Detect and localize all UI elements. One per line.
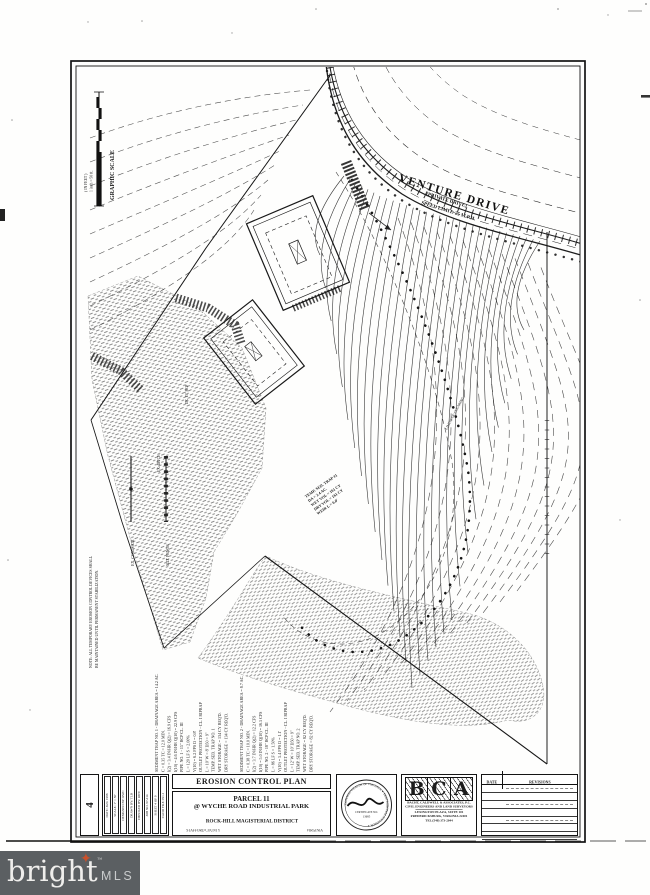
graphic-scale: GRAPHIC SCALE ( IN FEET ) 1 inch = 50 ft… <box>84 92 116 206</box>
scanned-plan-sheet: EX. CONTOUR SILT FENCE GRAPHIC SCALE ( I… <box>0 0 650 895</box>
svg-text:SEDIMENT TRAP NO. 1 - DRAINA: SEDIMENT TRAP NO. 1 - DRAINAGE AREA = 14… <box>154 674 159 772</box>
firm-logo-box: B C A BACHT, CALDWELL & ASSOCIATES, P.C.… <box>401 774 477 836</box>
revision-row <box>482 793 577 801</box>
plan-title-box: EROSION CONTROL PLAN <box>172 774 331 789</box>
parcel-label: PARCEL 11 <box>173 795 330 803</box>
svg-text:L = 12' W = 10' D50 = 9": L = 12' W = 10' D50 = 9" <box>289 730 294 772</box>
svg-text:PIPE NO. 1 - 15" RCP CL. III: PIPE NO. 1 - 15" RCP CL. III <box>179 722 184 772</box>
revision-row <box>482 809 577 817</box>
district-label: ROCK-HILL MAGISTERIAL DISTRICT <box>205 818 297 824</box>
seal-ring-text: COMMONWEALTH OF VIRGINIA ✦ PROFESSIONAL … <box>343 782 389 828</box>
engineer-seal-box: COMMONWEALTH OF VIRGINIA ✦ PROFESSIONAL … <box>336 774 397 836</box>
svg-text:DRY STORAGE = 82 CY REQ'D.: DRY STORAGE = 82 CY REQ'D. <box>308 715 313 772</box>
info-strip: JOB NO. 97-214 <box>144 776 151 834</box>
venture-drive-road <box>326 0 646 263</box>
info-strip: DESIGNED BY: RWC <box>120 776 127 834</box>
info-strip: SCALE: 1" = 50' <box>112 776 119 834</box>
park-label: @ WYCHE ROAD INDUSTRIAL PARK <box>173 803 330 810</box>
revisions-title-header: REVISIONS <box>529 780 550 784</box>
svg-text:V(10) = 5.4 FPS D = 1.1': V(10) = 5.4 FPS D = 1.1' <box>277 730 282 772</box>
svg-text:EX. 15" RCP: EX. 15" RCP <box>185 385 189 404</box>
svg-text:EX. DITCH: EX. DITCH <box>157 454 161 472</box>
svg-text:DRY STORAGE = 134 CY REQ'D.: DRY STORAGE = 134 CY REQ'D. <box>223 713 228 772</box>
graphic-scale-ratio: 1 inch = 50 ft. <box>90 171 94 192</box>
svg-text:PIPE NO. 2 - 18" RCP CL. III: PIPE NO. 2 - 18" RCP CL. III <box>264 722 269 772</box>
svg-text:L = 86 LF S = 1.50%: L = 86 LF S = 1.50% <box>271 737 276 772</box>
field-note-line2: BE MAINTAINED UNTIL PERMANENT STABILIZAT… <box>95 570 99 668</box>
svg-text:L = 10' W = 8' D50 = 9": L = 10' W = 8' D50 = 9" <box>204 732 209 772</box>
svg-text:TEMP. SED. TRAP NO. 1: TEMP. SED. TRAP NO. 1 <box>211 728 216 772</box>
legend-label-1: EX. CONTOUR <box>130 539 135 566</box>
registration-tick <box>315 26 322 46</box>
revision-row <box>482 817 577 825</box>
svg-text:OUTLET PROTECTION - CL. I RIPR: OUTLET PROTECTION - CL. I RIPRAP <box>283 702 288 772</box>
revisions-box: DATE REVISIONS <box>481 774 578 836</box>
county-label: STAFFORD COUNTY <box>186 829 220 833</box>
firm-initial-b: B <box>406 778 428 800</box>
revision-row <box>482 832 577 840</box>
svg-text:L = 120 LF S = 2.00%: L = 120 LF S = 2.00% <box>186 735 191 772</box>
firm-address: BACHT, CALDWELL & ASSOCIATES, P.C. CIVIL… <box>402 801 476 823</box>
legend-label-2: SILT FENCE <box>165 544 170 566</box>
building-pad-1 <box>246 196 350 313</box>
field-note-line1: NOTE: ALL TEMPORARY EROSION CONTROL DEVI… <box>89 555 93 668</box>
info-strip: CADD FILE: EC-1 <box>160 776 167 834</box>
svg-text:TEMP. SED. TRAP NO. 2: TEMP. SED. TRAP NO. 2 <box>296 728 301 772</box>
plan-drawing: EX. CONTOUR SILT FENCE GRAPHIC SCALE ( I… <box>0 0 650 895</box>
brightmls-trademark: ™ <box>97 858 102 863</box>
revision-row <box>482 785 577 793</box>
info-strip: DRAWN BY: TLB <box>128 776 135 834</box>
firm-initial-c: C <box>428 778 450 800</box>
graphic-scale-title: GRAPHIC SCALE <box>110 150 116 200</box>
plan-subtitle-box: PARCEL 11 @ WYCHE ROAD INDUSTRIAL PARK R… <box>172 791 331 836</box>
graphic-scale-feet: ( IN FEET ) <box>84 173 88 192</box>
info-strip: DATE: JAN. 1998 <box>104 776 111 834</box>
svg-text:I(10) = 5.0 IN/HR Q(10) = 16: I(10) = 5.0 IN/HR Q(10) = 16.5 CFS <box>258 711 263 772</box>
seal-cert-no: 13685 <box>363 815 371 819</box>
firm-initials: B C A <box>405 777 473 801</box>
sheet-number: 4 <box>84 802 96 808</box>
svg-text:C = 0.35 TC = 12.0 MIN.: C = 0.35 TC = 12.0 MIN. <box>160 730 165 772</box>
engineer-seal: COMMONWEALTH OF VIRGINIA ✦ PROFESSIONAL … <box>337 775 396 835</box>
svg-text:V(10) = 6.2 FPS D = 0.8': V(10) = 6.2 FPS D = 0.8' <box>192 730 197 772</box>
revisions-header: DATE REVISIONS <box>482 775 577 785</box>
svg-text:I(2) = 3.4 IN/HR Q(2) = 16.: I(2) = 3.4 IN/HR Q(2) = 16.9 CFS <box>167 715 172 772</box>
svg-text:C = 0.38 TC = 10.0 MIN.: C = 0.38 TC = 10.0 MIN. <box>245 730 250 772</box>
svg-text:I(2) = 3.7 IN/HR Q(2) = 12.: I(2) = 3.7 IN/HR Q(2) = 12.2 CFS <box>252 715 257 772</box>
svg-text:I(10) = 4.6 IN/HR Q(10) = 22: I(10) = 4.6 IN/HR Q(10) = 22.9 CFS <box>173 711 178 772</box>
brightmls-watermark: bright ✦ ™ MLS <box>0 851 140 895</box>
revisions-date-header: DATE <box>487 780 498 784</box>
sheet-number-box: 4 <box>80 774 99 836</box>
info-strip: SHEET 4 OF 9 <box>152 776 159 834</box>
info-strip: CHECKED BY: RWC <box>136 776 143 834</box>
plan-title: EROSION CONTROL PLAN <box>173 775 330 786</box>
state-label: VIRGINIA <box>306 829 322 833</box>
svg-text:SEDIMENT TRAP NO. 2 - DRAINA: SEDIMENT TRAP NO. 2 - DRAINAGE AREA = 8.… <box>239 676 244 772</box>
brightmls-mls-text: MLS <box>101 869 134 883</box>
svg-text:WET STORAGE = 82 CY REQ'D.: WET STORAGE = 82 CY REQ'D. <box>302 714 307 772</box>
drafting-info-strips: DATE: JAN. 1998 SCALE: 1" = 50' DESIGNED… <box>102 774 169 836</box>
svg-text:OUTLET PROTECTION - CL. I RIPR: OUTLET PROTECTION - CL. I RIPRAP <box>198 702 203 772</box>
brightmls-star-icon: ✦ <box>80 851 92 868</box>
revision-row <box>482 824 577 832</box>
seal-signature <box>348 799 384 806</box>
firm-initial-a: A <box>451 778 472 800</box>
svg-text:WET STORAGE = 134 CY REQ'D.: WET STORAGE = 134 CY REQ'D. <box>217 712 222 772</box>
revision-row <box>482 801 577 809</box>
